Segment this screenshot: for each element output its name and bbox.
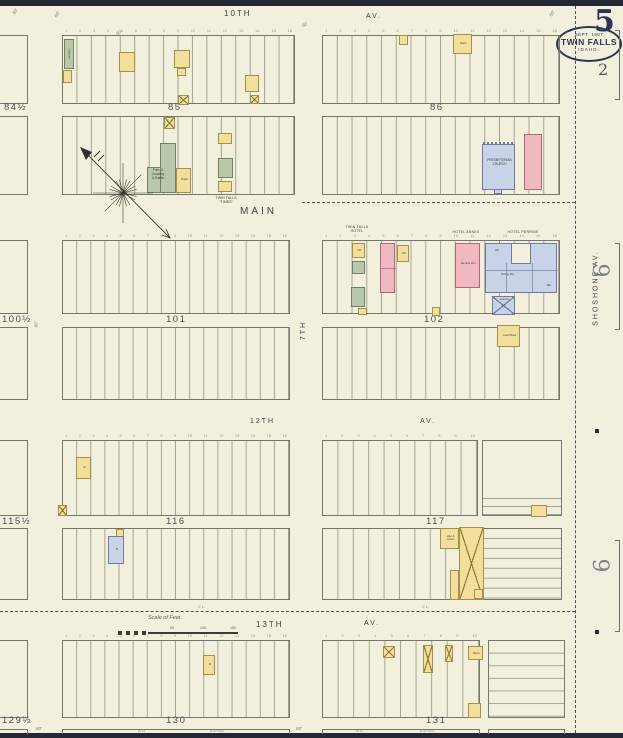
building-hall [524, 134, 542, 190]
title-badge: SEPT. 1907 TWIN FALLS IDAHO. [556, 26, 622, 62]
block-131-number: 131 [426, 715, 446, 726]
building-dwelling-116: D [76, 457, 91, 479]
lot-number: 11 [203, 233, 207, 238]
building-dwelling-117e [531, 505, 547, 517]
lot-number: 5 [121, 28, 123, 33]
block-131-east-sliver [488, 729, 565, 734]
lot-number: 6 [396, 233, 398, 238]
lot-number: 8 [160, 433, 162, 438]
block-130-sliver [62, 729, 290, 734]
lot-number: 7 [411, 28, 413, 33]
block-101-number: 101 [166, 314, 186, 325]
lot-number: 14 [251, 233, 255, 238]
building-divider [486, 270, 558, 271]
building-blue-116: D [108, 536, 124, 564]
lot-number: 8 [425, 233, 427, 238]
block-129-number: 129½ [2, 715, 32, 726]
lot-number: 5 [390, 433, 392, 438]
building-hotel-annex: Sample Rm. [455, 243, 480, 288]
street-label-13th-av: AV. [364, 620, 380, 627]
lot-number: 2 [339, 28, 341, 33]
block-131-lot-numbers: 12345678910 [322, 633, 480, 638]
lot-number: 12 [486, 28, 490, 33]
shoshone-center-dashed-line [575, 6, 576, 733]
dim-60ft-1: 60' [53, 11, 60, 19]
lot-number: 14 [251, 433, 255, 438]
building-church-porch [494, 189, 502, 194]
no-expos-label-2b: EXPOS. [420, 728, 435, 733]
lot-number: 4 [106, 433, 108, 438]
building-hay-feed: Hay & Feed [440, 528, 459, 549]
building-small-3b [177, 68, 186, 76]
dim-60ft-5: 60' [33, 322, 38, 328]
building-hotel-perrine: Off. Dining Rm. Bar [485, 243, 557, 293]
street-label-10th: 10TH [224, 9, 252, 18]
block-100-number: 100½ [2, 314, 32, 325]
building-small-2 [119, 52, 135, 72]
street-label-13th: 13TH [256, 620, 284, 629]
lot-number: 6 [407, 633, 409, 638]
block-117-east-strip-upper [482, 440, 562, 516]
lot-number: 1 [65, 433, 67, 438]
lot-number: 2 [339, 233, 341, 238]
no-expos-label-1a: N O [138, 728, 145, 733]
block-100-lower-tier [0, 327, 28, 400]
margin-mark-upper [595, 429, 599, 433]
lot-number: 10 [471, 433, 475, 438]
building-small-4 [245, 75, 259, 92]
lot-number: 10 [188, 633, 192, 638]
block-129-tier [0, 640, 28, 718]
no-expos-label-1b: EXPOS. [210, 728, 225, 733]
lot-number: 6 [135, 28, 137, 33]
lot-number: 9 [454, 433, 456, 438]
lot-number: 13 [503, 233, 507, 238]
lot-number: 14 [519, 28, 523, 33]
lot-number: 10 [473, 633, 477, 638]
lot-number: 13 [235, 233, 239, 238]
lot-number: 15 [536, 233, 540, 238]
sheet-edge-bracket-top [615, 30, 620, 100]
lot-number: 3 [354, 233, 356, 238]
lot-number: 15 [267, 233, 271, 238]
scale-tick-100: 100 [200, 626, 206, 630]
lot-number: 2 [79, 28, 81, 33]
lot-number: 9 [456, 633, 458, 638]
lot-number: 8 [160, 633, 162, 638]
lot-number: 8 [438, 433, 440, 438]
block-130-number: 130 [166, 715, 186, 726]
city-limits-label-1: C.L. [198, 604, 205, 609]
east-strip-rows [483, 491, 561, 515]
lot-number: 5 [391, 633, 393, 638]
scale-tick-150: 150 [230, 626, 236, 630]
block-84-lower-tier [0, 116, 28, 195]
no-expos-label-2a: N O [356, 728, 363, 733]
lot-number: 3 [354, 28, 356, 33]
building-shed-3 [164, 117, 175, 129]
city-limits-label-2: C.L. [422, 604, 429, 609]
block-131-sliver [322, 729, 480, 734]
lot-number: 15 [271, 28, 275, 33]
lot-number: 3 [92, 433, 94, 438]
building-office-1: Off. [352, 243, 365, 258]
block-117-east-strip-lower [482, 528, 562, 600]
building-shed-1 [178, 95, 189, 105]
main-street-dashed-line [302, 202, 575, 203]
lot-number: 11 [207, 28, 211, 33]
lot-number: 14 [251, 633, 255, 638]
lot-number: 1 [325, 233, 327, 238]
hotel-courtyard [511, 244, 531, 264]
lot-number: 4 [374, 433, 376, 438]
building-shed-4 [58, 505, 67, 516]
building-divider [506, 263, 507, 293]
lot-number: 1 [325, 633, 327, 638]
lot-number: 9 [174, 433, 176, 438]
sheet-edge-bracket-mid [615, 243, 620, 330]
page-ref-number: 2 [598, 60, 608, 79]
lot-number: 5 [120, 433, 122, 438]
building-dwelling-130: D [203, 655, 215, 675]
street-label-main: MAIN [240, 206, 277, 217]
lot-number: 6 [133, 633, 135, 638]
block-116-number: 116 [166, 516, 186, 527]
dim-60ft-6: 60' [36, 726, 42, 731]
building-times-front [218, 133, 232, 144]
lot-number: 16 [552, 233, 556, 238]
lot-number: 11 [470, 233, 474, 238]
badge-city: TWIN FALLS [558, 37, 620, 47]
scale-bar-title: Scale of Feet. [148, 615, 182, 621]
building-livery-wing [450, 570, 459, 600]
lot-number: 7 [147, 433, 149, 438]
block-101-upper-tier [62, 240, 290, 314]
lot-number: 2 [79, 633, 81, 638]
lot-number: 7 [147, 633, 149, 638]
lot-number: 7 [149, 28, 151, 33]
building-hotel-laundry: Laundry [492, 296, 515, 315]
lot-number: 10 [454, 233, 458, 238]
lot-number: 14 [255, 28, 259, 33]
city-limits-dashed-line [0, 611, 575, 612]
street-label-10th-av: AV. [366, 13, 382, 20]
lot-number: 16 [282, 233, 286, 238]
lot-number: 2 [341, 433, 343, 438]
building-small-9 [468, 703, 481, 718]
building-store-102a [352, 261, 365, 274]
scale-tick-50: 50 [170, 626, 174, 630]
building-divider [381, 268, 396, 269]
building-small-1 [63, 70, 72, 83]
dim-50ft: 50' [11, 8, 18, 16]
block-86-number: 86 [430, 102, 444, 113]
lot-number: 2 [341, 633, 343, 638]
dim-60ft-4: 60' [548, 10, 555, 18]
lot-number: 10 [191, 28, 195, 33]
building-times-office [218, 158, 233, 178]
lot-number: 4 [106, 633, 108, 638]
lot-number: 6 [396, 28, 398, 33]
lot-number: 13 [235, 633, 239, 638]
lot-number: 3 [358, 633, 360, 638]
street-label-shoshone-av: SHOSHONE AV. [585, 241, 595, 336]
building-divider [532, 263, 533, 293]
dim-60ft-3: 60' [301, 21, 309, 28]
block-131-tier [322, 640, 480, 718]
sheet-edge-bracket-bottom [615, 540, 620, 632]
building-office-2: Off. [397, 245, 409, 262]
lot-number: 16 [282, 433, 286, 438]
building-small-6 [358, 308, 367, 315]
building-coal-shed: Coal Shed [497, 325, 520, 347]
block-86-lot-numbers: 12345678910111213141516 [322, 28, 560, 33]
lot-number: 6 [406, 433, 408, 438]
lot-number: 15 [267, 433, 271, 438]
lot-number: 11 [203, 633, 207, 638]
lot-number: 3 [92, 633, 94, 638]
block-115-number: 115½ [2, 516, 31, 527]
building-barn-131: Barn [468, 646, 483, 660]
lot-number: 9 [439, 233, 441, 238]
building-livery-office [474, 589, 483, 599]
block-130-lot-numbers: 12345678910111213141516 [62, 633, 290, 638]
lot-number: 7 [422, 433, 424, 438]
lot-number: 10 [188, 433, 192, 438]
block-117-number: 117 [426, 516, 446, 527]
building-shed-7 [445, 645, 453, 662]
building-laundry: Laundry [64, 39, 74, 69]
lot-number: 10 [454, 28, 458, 33]
lot-number: 16 [288, 28, 292, 33]
block-116-upper-tier [62, 440, 290, 516]
block-84-number: 84½ [4, 102, 27, 113]
block-101-lower-tier [62, 327, 290, 400]
block-117-upper-tier [322, 440, 478, 516]
lot-number: 6 [133, 433, 135, 438]
lot-number: 11 [470, 28, 474, 33]
lot-number: 3 [357, 433, 359, 438]
lot-number: 8 [163, 28, 165, 33]
compass-rose-icon [60, 130, 190, 250]
lot-number: 7 [411, 233, 413, 238]
badge-state: IDAHO. [558, 47, 620, 52]
building-small-5 [399, 35, 408, 45]
lot-number: 9 [174, 633, 176, 638]
building-barn-86: Barn [453, 34, 472, 54]
lot-number: 5 [382, 233, 384, 238]
block-130-tier [62, 640, 290, 718]
margin-mark-lower [595, 630, 599, 634]
dim-60ft-7: 60' [296, 726, 302, 731]
lot-number: 12 [219, 433, 223, 438]
lot-number: 13 [239, 28, 243, 33]
building-shed-2 [250, 95, 259, 104]
building-times-rear [218, 181, 232, 192]
lot-number: 12 [486, 233, 490, 238]
lot-number: 1 [325, 28, 327, 33]
block-102-lower-tier [322, 327, 560, 400]
lot-number: 4 [368, 28, 370, 33]
lot-number: 1 [325, 433, 327, 438]
building-shed-6 [423, 645, 433, 673]
lot-number: 15 [267, 633, 271, 638]
block-84-upper-tier [0, 35, 28, 104]
building-presbyterian-church: PRESBYTERIAN CHURCH [482, 144, 515, 190]
lot-number: 16 [552, 28, 556, 33]
lot-number: 15 [536, 28, 540, 33]
building-brick-store [380, 243, 395, 293]
block-129-sliver [0, 729, 28, 734]
block-117-lot-numbers: 12345678910 [322, 433, 478, 438]
block-116-lower-tier [62, 528, 290, 600]
lot-number: 14 [519, 233, 523, 238]
street-label-12th: 12TH [250, 418, 275, 425]
lot-number: 2 [79, 433, 81, 438]
lot-number: 12 [219, 633, 223, 638]
lot-number: 1 [65, 633, 67, 638]
lot-number: 4 [107, 28, 109, 33]
lot-number: 12 [223, 28, 227, 33]
building-small-3 [174, 50, 190, 68]
lot-number: 5 [120, 633, 122, 638]
sheet-top-edge [0, 0, 623, 6]
block-102-lot-numbers: 12345678910111213141516 [322, 233, 560, 238]
lot-number: 4 [368, 233, 370, 238]
twin-falls-times-label: TWIN FALLS “TIMES” [204, 196, 248, 205]
block-115-lower-tier [0, 528, 28, 600]
lot-number: 8 [425, 28, 427, 33]
lot-number: 13 [503, 28, 507, 33]
block-115-upper-tier [0, 440, 28, 516]
lot-number: 13 [235, 433, 239, 438]
adjacent-sheet-number-lower: 6 [591, 559, 616, 573]
block-86-upper-tier [322, 35, 560, 104]
building-shed-5 [383, 646, 395, 658]
block-131-east-strip [488, 640, 565, 718]
lot-number: 5 [382, 28, 384, 33]
lot-number: 12 [219, 233, 223, 238]
lot-number: 11 [203, 433, 207, 438]
street-label-7th: 7TH [300, 321, 307, 340]
street-label-12th-av: AV. [420, 418, 436, 425]
lot-number: 9 [439, 28, 441, 33]
lot-number: 3 [93, 28, 95, 33]
lot-number: 4 [374, 633, 376, 638]
lot-number: 7 [423, 633, 425, 638]
lot-number: 8 [440, 633, 442, 638]
sanborn-map-sheet: 5 SEPT. 1907 TWIN FALLS IDAHO. 2 6 6 10T… [0, 0, 623, 738]
building-store-102b [351, 287, 365, 307]
lot-number: 16 [282, 633, 286, 638]
lot-number: 9 [177, 28, 179, 33]
block-116-lot-numbers: 12345678910111213141516 [62, 433, 290, 438]
block-100-upper-tier [0, 240, 28, 314]
building-small-7 [432, 307, 440, 316]
lot-number: 1 [65, 28, 67, 33]
block-85-lot-numbers: 12345678910111213141516 [62, 28, 295, 33]
